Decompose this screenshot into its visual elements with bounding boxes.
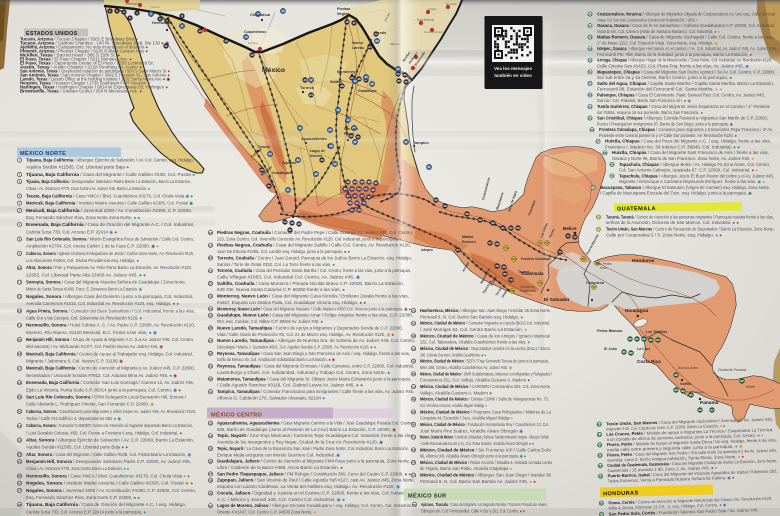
svg-text:31: 31 bbox=[267, 184, 271, 188]
svg-text:Las Tablillas: Las Tablillas bbox=[646, 330, 667, 334]
svg-text:64: 64 bbox=[456, 248, 460, 252]
svg-text:Michoacana) / Av. Michoacán #1: Michoacana) / Av. Michoacán #1377, Col. … bbox=[26, 344, 163, 349]
svg-text:34: 34 bbox=[309, 93, 313, 97]
svg-text:54: 54 bbox=[412, 473, 416, 477]
svg-text:Honduras: Honduras bbox=[632, 258, 655, 264]
svg-text:Hermosillo, Sonora / Casa YMCA: Hermosillo, Sonora / Casa YMCA / Blvd. C… bbox=[26, 473, 190, 478]
svg-text:75: 75 bbox=[558, 250, 562, 254]
svg-text:38: 38 bbox=[209, 479, 213, 483]
svg-text:53: 53 bbox=[443, 204, 447, 208]
svg-text:45: 45 bbox=[353, 194, 357, 198]
svg-text:80: 80 bbox=[597, 422, 601, 426]
svg-text:14: 14 bbox=[18, 323, 22, 327]
svg-text:Brownsville, Texas / Graham Ce: Brownsville, Texas / Graham Center / 354… bbox=[20, 89, 142, 94]
svg-text:21: 21 bbox=[404, 140, 408, 144]
svg-text:Permasil 9, N. Col. Barrio San: Permasil 9, N. Col. Barrio San Bartolo e… bbox=[420, 314, 523, 319]
svg-text:GUATEMALA: GUATEMALA bbox=[617, 206, 656, 212]
svg-text:Tapachula, Chiapas / Albergue: Tapachula, Chiapas / Albergue Jesús El B… bbox=[619, 173, 774, 178]
svg-text:Porres / Preangacion Inmigrant: Porres / Preangacion Inmigrantes 97, Bar… bbox=[597, 121, 733, 126]
svg-text:53: 53 bbox=[412, 461, 416, 465]
svg-text:Constantino 251, Col. Vallejo,: Constantino 251, Col. Vallejo, Alcaldía … bbox=[420, 378, 530, 383]
svg-text:18: 18 bbox=[209, 231, 213, 235]
svg-text:46: 46 bbox=[367, 180, 371, 184]
svg-text:46: 46 bbox=[360, 194, 364, 198]
svg-text:Monterrey, Nuevo León / Casa d: Monterrey, Nuevo León / Casa del Migrant… bbox=[217, 294, 409, 299]
svg-text:93: 93 bbox=[698, 408, 702, 412]
svg-text:Torreón, Coahuila / Casa del P: Torreón, Coahuila / Casa del Pensador Sa… bbox=[217, 268, 411, 273]
svg-text:22: 22 bbox=[209, 282, 213, 286]
svg-text:Paso Canoas: Paso Canoas bbox=[686, 390, 705, 394]
svg-text:/ Calle Agustín Ramírez #3118,: / Calle Agustín Ramírez #3118, Col. Gabr… bbox=[217, 383, 363, 388]
svg-text:Tepic, Nayarit / Cruz Roja Mex: Tepic, Nayarit / Cruz Roja Mexicana / Ca… bbox=[217, 433, 414, 438]
svg-text:17: 17 bbox=[352, 21, 356, 25]
svg-text:/ Luis Donaldo Colosio, #50, C: / Luis Donaldo Colosio, #50, Col. Frente… bbox=[26, 430, 182, 435]
svg-text:Luxemburgo y Ghani, Col. Solid: Luxemburgo y Ghani, Col. Solidaridad, Vo… bbox=[217, 370, 390, 375]
svg-text:31: 31 bbox=[286, 188, 290, 192]
svg-text:México, Ciudad de México / Cár: México, Ciudad de México / Cáritas CDMX … bbox=[420, 397, 549, 402]
svg-text:17: 17 bbox=[18, 367, 22, 371]
svg-text:27: 27 bbox=[404, 80, 408, 84]
svg-text:26: 26 bbox=[209, 326, 213, 330]
svg-text:Coatzacoalcos, Veracruz / Albe: Coatzacoalcos, Veracruz / Albergue de Mi… bbox=[597, 12, 775, 17]
svg-text:señora de la Asunción, Diócesi: señora de la Asunción, Diócesis de San M… bbox=[606, 220, 740, 225]
svg-text:81: 81 bbox=[598, 433, 602, 437]
svg-text:Agua Prieta, Sonora / Comedor: Agua Prieta, Sonora / Comedor del Buen S… bbox=[26, 308, 195, 313]
svg-text:Matamoros, Tamaulipas / Casa d: Matamoros, Tamaulipas / Casa del Migrant… bbox=[217, 376, 411, 381]
svg-text:Ferrocarril 88, Estación del F: Ferrocarril 88, Estación del Ferrocarril… bbox=[597, 87, 723, 92]
svg-text:Anaya, Col. San José, Coatzaco: Anaya, Col. San José, Coatzacoalcos Cons… bbox=[597, 17, 698, 22]
svg-text:26: 26 bbox=[397, 79, 401, 83]
svg-text:San Luis Río Colorado, Sonora: San Luis Río Colorado, Sonora / CRM Dele… bbox=[26, 394, 187, 399]
svg-text:44: 44 bbox=[346, 194, 350, 198]
svg-text:Corpus Christi: Corpus Christi bbox=[424, 30, 443, 34]
svg-text:Carlota Sosa 733, Col. Acceso: Carlota Sosa 733, Col. Acceso E.P. 22414… bbox=[26, 229, 117, 234]
svg-text:Salto del Agua, Chiapas / Capi: Salto del Agua, Chiapas / Capilla Santa … bbox=[597, 81, 774, 86]
svg-text:28: 28 bbox=[209, 352, 213, 356]
svg-text:31: 31 bbox=[209, 390, 213, 394]
svg-text:Golfo de México 40, Col. Ampli: Golfo de México 40, Col. Ampliación Soli… bbox=[217, 357, 335, 362]
svg-text:63: 63 bbox=[516, 226, 520, 230]
svg-text:27: 27 bbox=[353, 140, 357, 144]
svg-text:123, Zona Centro, Col. Inverni: 123, Zona Centro, Col. Invernillo Conoci… bbox=[217, 236, 402, 241]
svg-text:82: 82 bbox=[642, 337, 646, 341]
svg-text:43: 43 bbox=[412, 334, 416, 338]
svg-text:42: 42 bbox=[412, 322, 416, 326]
svg-text:México, Ciudad de México / Cas: México, Ciudad de México / Casa de los A… bbox=[420, 333, 550, 338]
svg-text:Mapastepec, Chiapas / Casa del: Mapastepec, Chiapas / Casa del Migrante … bbox=[597, 69, 775, 74]
svg-text:72: 72 bbox=[573, 235, 577, 239]
svg-text:24: 24 bbox=[268, 152, 272, 156]
svg-text:HONDURAS: HONDURAS bbox=[603, 490, 639, 497]
svg-text:Sonoyta, Sonora / Casa del Mig: Sonoyta, Sonora / Casa del Migrante Nues… bbox=[26, 280, 186, 285]
svg-text:/ Capilla de Macuspana Escuela: / Capilla de Macuspana Escuela del Tren.… bbox=[600, 191, 752, 196]
svg-text:Tapachula, Chiapas / Albergue: Tapachula, Chiapas / Albergue Belén / Av… bbox=[619, 162, 770, 167]
svg-text:Ejido La Victoria, Punta Seda: Ejido La Victoria, Punta Seda C.P. 80314… bbox=[26, 387, 181, 392]
svg-text:39: 39 bbox=[209, 491, 213, 495]
svg-text:Tacaná, Tacaná / Centro de Ate: Tacaná, Tacaná / Centro de Atención a la… bbox=[606, 215, 774, 220]
svg-text:Necesitados / Unacode Sondas #: Necesitados / Unacode Sondas #7912, Col.… bbox=[26, 373, 177, 378]
svg-text:México, Ciudad de México / SMR: México, Ciudad de México / SMR Scalabrin… bbox=[420, 371, 553, 376]
svg-text:Tepic, Nayarit / La Casa de la: Tepic, Nayarit / La Casa de la Esperanza… bbox=[217, 446, 409, 451]
svg-text:61: 61 bbox=[501, 226, 505, 230]
svg-text:Mexicali, Baja California / Ce: Mexicali, Baja California / Centro de At… bbox=[26, 366, 195, 371]
svg-text:45: 45 bbox=[412, 359, 416, 363]
svg-text:46: 46 bbox=[297, 222, 301, 226]
svg-text:34: 34 bbox=[209, 434, 213, 438]
svg-text:19: 19 bbox=[18, 395, 22, 399]
svg-text:90: 90 bbox=[681, 389, 685, 393]
svg-text:Guadalajara, Jalisco / Centro: Guadalajara, Jalisco / Centro de Atenció… bbox=[217, 459, 410, 464]
svg-text:41: 41 bbox=[412, 309, 416, 313]
svg-text:78: 78 bbox=[510, 289, 514, 293]
svg-text:49: 49 bbox=[350, 187, 354, 191]
svg-text:51: 51 bbox=[364, 187, 368, 191]
svg-text:Aguascalientes: Aguascalientes bbox=[301, 137, 327, 141]
svg-text:88: 88 bbox=[674, 373, 678, 377]
svg-text:Panamá: Panamá bbox=[700, 400, 719, 406]
svg-text:Aquiles Serdán #11565, Col. Li: Aquiles Serdán #11565, Col. Libertad par… bbox=[26, 165, 129, 170]
svg-text:30: 30 bbox=[209, 377, 213, 381]
svg-text:50: 50 bbox=[357, 187, 361, 191]
svg-text:86: 86 bbox=[629, 351, 633, 355]
svg-text:San Antonio: San Antonio bbox=[417, 18, 434, 22]
svg-text:36: 36 bbox=[357, 77, 361, 81]
svg-text:47: 47 bbox=[374, 181, 378, 185]
svg-text:Altar, Sonora / Pan y Panquema: Altar, Sonora / Pan y Panquemas Av. Feli… bbox=[26, 265, 192, 270]
svg-text:Ampliación #2704, Col. Anexa C: Ampliación #2704, Col. Anexa Cañón 1 de … bbox=[26, 244, 159, 249]
svg-text:Mexicali, Baja California / Ju: Mexicali, Baja California / Juventud 200… bbox=[26, 208, 192, 213]
svg-text:Hermosillo: Hermosillo bbox=[152, 21, 172, 25]
svg-text:Calle Sur y las Cerejos, Col.: Calle Sur y las Cerejos, Col. Soberonia … bbox=[26, 316, 142, 321]
svg-text:23: 23 bbox=[375, 39, 379, 43]
svg-text:92: 92 bbox=[740, 379, 744, 383]
svg-text:Enrique Mejía enzguina con Mor: Enrique Mejía enzguina con Morelo Guerre… bbox=[217, 452, 340, 457]
svg-text:82: 82 bbox=[598, 443, 602, 447]
svg-text:Esq. Fernando Sánchez Ríos, Zo: Esq. Fernando Sánchez Ríos, Zona Norte C… bbox=[26, 495, 140, 500]
svg-text:Guadalajara: Guadalajara bbox=[272, 171, 292, 175]
svg-text:Zapopan, Jalisco / San Vicente: Zapopan, Jalisco / San Vicente de Paul /… bbox=[217, 478, 415, 483]
svg-text:Mexicali, Baja California / Ce: Mexicali, Baja California / Centro de Ap… bbox=[26, 351, 193, 356]
svg-text:esquina con Lázaro Cárdenas, L: esquina con Lázaro Cárdenas, La Venta de… bbox=[217, 484, 400, 489]
svg-text:México, Ciudad de México / Dep: México, Ciudad de México / Deportados Un… bbox=[420, 346, 551, 351]
svg-text:MÉXICO NORTE: MÉXICO NORTE bbox=[20, 149, 66, 157]
svg-text:49: 49 bbox=[355, 201, 359, 205]
svg-text:609, Barrio de Guadalupe (Junt: 609, Barrio de Guadalupe (Junto al Pante… bbox=[217, 427, 396, 432]
svg-text:Aquiles Serdán #11565, Col. Li: Aquiles Serdán #11565, Col. Libertad par… bbox=[26, 445, 128, 450]
svg-text:50: 50 bbox=[362, 201, 366, 205]
svg-text:84: 84 bbox=[599, 464, 603, 468]
svg-text:24: 24 bbox=[209, 307, 213, 311]
svg-text:Nogales, Sonora / Albergue Cas: Nogales, Sonora / Albergue Casa del Desi… bbox=[26, 294, 193, 299]
svg-text:Nuevo Laredo, Tamaulipas / Alb: Nuevo Laredo, Tamaulipas / Albergue de N… bbox=[217, 338, 415, 343]
svg-text:Tijuana, Baja California / Cas: Tijuana, Baja California / Casa de Oraci… bbox=[26, 502, 186, 507]
svg-text:75: 75 bbox=[597, 228, 601, 232]
svg-text:29: 29 bbox=[209, 364, 213, 368]
svg-text:89: 89 bbox=[674, 388, 678, 392]
svg-text:21: 21 bbox=[18, 424, 22, 428]
svg-text:66: 66 bbox=[590, 128, 594, 132]
svg-text:37: 37 bbox=[209, 472, 213, 476]
svg-text:20: 20 bbox=[370, 82, 374, 86]
svg-text:Peñas Blancas: Peñas Blancas bbox=[597, 329, 622, 333]
svg-text:Matías: Matías bbox=[462, 235, 473, 239]
svg-text:66: 66 bbox=[502, 265, 506, 269]
svg-text:Mier 198, Centro, Alcaldía Cua: Mier 198, Centro, Alcaldía Cuauhtémoc Av… bbox=[420, 365, 512, 370]
svg-text:Lagos de: Lagos de bbox=[310, 149, 325, 153]
svg-text:Poniente entre Central ponien: Poniente entre Central ponien te y 1ª Ca… bbox=[599, 133, 737, 138]
svg-text:14: 14 bbox=[244, 35, 248, 39]
svg-text:25: 25 bbox=[403, 73, 407, 77]
svg-text:sur #1564, esquina 16 sur poni: sur #1564, esquina 16 sur poniente, Barr… bbox=[597, 110, 703, 115]
svg-text:Benjamín Hill, Sonora / Grupo: Benjamín Hill, Sonora / Grupo de Ayuda a… bbox=[26, 337, 194, 342]
svg-text:24: 24 bbox=[396, 67, 400, 71]
svg-text:71: 71 bbox=[538, 241, 542, 245]
svg-text:22: 22 bbox=[18, 438, 22, 442]
svg-text:Los Alacranes #4004, Col. Divi: Los Alacranes #4004, Col. Divina Provide… bbox=[26, 258, 139, 263]
svg-text:Tecate, Baja California / Casa: Tecate, Baja California / Casa YMCA / Bl… bbox=[26, 193, 193, 198]
svg-text:71: 71 bbox=[591, 186, 595, 190]
svg-text:44: 44 bbox=[353, 180, 357, 184]
svg-text:74: 74 bbox=[597, 215, 601, 219]
svg-text:25: 25 bbox=[209, 314, 213, 318]
svg-text:Huehuetoca, México / Albergue: Huehuetoca, México / Albergue San Juan D… bbox=[420, 308, 551, 313]
svg-text:Tacaná: Tacaná bbox=[518, 270, 529, 274]
svg-text:58: 58 bbox=[588, 35, 592, 39]
svg-text:Huixtla, Chiapas / Casa del Pa: Huixtla, Chiapas / Casa del Paso del Mig… bbox=[605, 139, 771, 144]
svg-text:19: 19 bbox=[346, 118, 350, 122]
svg-text:Descalape / María J. Gerardos: Descalape / María J. Gerardos #801, Col.… bbox=[217, 345, 376, 350]
svg-text:84: 84 bbox=[656, 338, 660, 342]
svg-text:65: 65 bbox=[588, 116, 592, 120]
svg-text:69: 69 bbox=[610, 163, 614, 167]
svg-text:96, Alfonso XIII, Alcaldía Álv: 96, Alfonso XIII, Alcaldía Álvaro Obregó… bbox=[420, 454, 526, 459]
svg-text:Victoria s/n, Col. Carrera (At: Victoria s/n, Col. Carrera (Atrás de San… bbox=[597, 29, 720, 34]
svg-text:San Cristóbal, Chiapas / Alber: San Cristóbal, Chiapas / Albergue Comida… bbox=[597, 116, 768, 121]
svg-text:18: 18 bbox=[18, 381, 22, 385]
svg-text:Vea los mensajes: Vea los mensajes bbox=[494, 66, 532, 71]
svg-text:Nogales, Sonora / Juventud 200: Nogales, Sonora / Juventud 2000 / Av. Co… bbox=[26, 488, 196, 493]
svg-text:Tijuana, Baja California / Alb: Tijuana, Baja California / Albergue Ejér… bbox=[26, 158, 194, 163]
svg-text:62: 62 bbox=[509, 226, 513, 230]
svg-text:48: 48 bbox=[343, 187, 347, 191]
svg-text:1° de Mayo 1113, Col. Estación: 1° de Mayo 1113, Col. Estación Vieja. Zo… bbox=[597, 40, 718, 45]
svg-text:51: 51 bbox=[412, 435, 416, 439]
svg-text:Golfito: Golfito bbox=[680, 382, 691, 386]
svg-text:México, Ciudad de México / Alb: México, Ciudad de México / Albergue San … bbox=[420, 473, 552, 478]
svg-text:67: 67 bbox=[488, 241, 492, 245]
svg-text:Santos / Torre de Orata #332,: Santos / Torre de Orata #332, Col. La To… bbox=[217, 262, 335, 267]
svg-text:Choluteca: Choluteca bbox=[586, 281, 605, 285]
svg-text:72: 72 bbox=[581, 257, 585, 261]
svg-text:Negras: Negras bbox=[337, 12, 350, 16]
svg-text:44: 44 bbox=[283, 220, 287, 224]
svg-text:Arriaga, Chiapas / Albergue Ho: Arriaga, Chiapas / Albergue Hogar de la … bbox=[597, 58, 772, 63]
svg-text:MÉXICO SUR: MÉXICO SUR bbox=[408, 492, 446, 500]
svg-text:México, Ciudad de México / Com: México, Ciudad de México / Comedor migra… bbox=[420, 321, 550, 326]
svg-text:México, Ciudad de México / Fun: México, Ciudad de México / Fundación Hum… bbox=[420, 422, 549, 427]
svg-text:54: 54 bbox=[512, 257, 516, 261]
svg-text:Nuevo Laredo, Tamaulipas / Cen: Nuevo Laredo, Tamaulipas / Centro de Apo… bbox=[217, 325, 403, 330]
svg-text:Chava / Av. Ozamocs #779, Zona: Chava / Av. Ozamocs #779, Zona Centro Ba… bbox=[26, 466, 129, 471]
svg-text:Laredo: Laredo bbox=[352, 46, 365, 50]
svg-text:Guadalupe: Guadalupe bbox=[358, 89, 377, 93]
svg-text:Mexicali: Mexicali bbox=[126, 2, 138, 6]
svg-text:El Jobo: El Jobo bbox=[604, 347, 618, 351]
svg-text:Calle por Cooperativa 5 / 9. Z: Calle por Cooperativa 5 / 9. Zona Norte,… bbox=[606, 232, 723, 237]
svg-text:21: 21 bbox=[427, 165, 431, 169]
svg-text:80: 80 bbox=[628, 337, 632, 341]
svg-text:47: 47 bbox=[367, 195, 371, 199]
svg-text:32: 32 bbox=[314, 172, 318, 176]
svg-text:55: 55 bbox=[413, 503, 417, 507]
svg-text:59: 59 bbox=[478, 218, 482, 222]
svg-text:#54, esq. Carolas, Col. Milita: #54, esq. Carolas, Col. Militar C.P. 882… bbox=[217, 319, 323, 324]
svg-text:50: 50 bbox=[412, 423, 416, 427]
svg-text:Esq. Fernando Sánchez Ríos, Zo: Esq. Fernando Sánchez Ríos, Zona Norte Z… bbox=[26, 215, 140, 220]
svg-text:28: 28 bbox=[329, 144, 333, 148]
svg-text:10: 10 bbox=[281, 9, 285, 13]
svg-text:49: 49 bbox=[412, 410, 416, 414]
svg-text:MÉXICO CENTRO: MÉXICO CENTRO bbox=[211, 411, 262, 419]
svg-text:27: 27 bbox=[209, 339, 213, 343]
svg-text:43: 43 bbox=[320, 158, 324, 162]
svg-text:Ciudad de Panamá: Ciudad de Panamá bbox=[718, 368, 746, 372]
svg-text:Macuspana, Tabasco / Albergue: Macuspana, Tabasco / Albergue El Santuar… bbox=[600, 185, 770, 190]
svg-text:77: 77 bbox=[592, 285, 596, 289]
svg-text:Hermosillo, Sonora / Hotel Cob: Hermosillo, Sonora / Hotel Cobina A. C. … bbox=[26, 323, 195, 328]
svg-text:68: 68 bbox=[603, 151, 607, 155]
svg-text:Saltillo: Saltillo bbox=[330, 80, 343, 84]
svg-text:México: México bbox=[262, 67, 285, 74]
svg-text:Austin: Austin bbox=[428, 7, 437, 11]
svg-text:74: 74 bbox=[504, 246, 508, 250]
svg-text:Ensenada, Baja California / Co: Ensenada, Baja California / Comedor San … bbox=[26, 380, 194, 385]
svg-text:Tecún Umán, San Marcos / Centr: Tecún Umán, San Marcos / Centro de Recep… bbox=[606, 227, 774, 232]
svg-text:10: 10 bbox=[198, 29, 202, 33]
svg-text:81: 81 bbox=[635, 337, 639, 341]
svg-text:José María Pino Suárez, Alcald: José María Pino Suárez, Alcaldía Álvaro … bbox=[420, 428, 523, 433]
svg-text:Torreón, Coahuila / Centro / J: Torreón, Coahuila / Centro / Juan Gerard… bbox=[217, 255, 412, 260]
svg-text:71: 71 bbox=[566, 234, 570, 238]
svg-text:Nogales, Sonora / Instituto Ma: Nogales, Sonora / Instituto Madre Assunt… bbox=[26, 481, 193, 486]
svg-text:58: 58 bbox=[465, 212, 469, 216]
svg-text:México, Ciudad de México / Com: México, Ciudad de México / Comité de Sol… bbox=[420, 435, 549, 440]
svg-text:Metetí: Metetí bbox=[746, 385, 755, 389]
svg-text:Guatemala: Guatemala bbox=[520, 289, 536, 293]
svg-text:43: 43 bbox=[346, 180, 350, 184]
svg-text:56: 56 bbox=[588, 12, 592, 16]
svg-text:11: 11 bbox=[18, 280, 21, 284]
svg-text:45: 45 bbox=[360, 180, 364, 184]
svg-text:Huixtla, Chiapás / Casa del Mi: Huixtla, Chiapás / Casa del Migrante San… bbox=[612, 150, 769, 155]
svg-text:12: 12 bbox=[18, 295, 22, 299]
svg-text:Tuxtla Gutiérrez, Chiapas / Ca: Tuxtla Gutiérrez, Chiapas / Casa del Mig… bbox=[597, 104, 771, 109]
svg-text:Monterrey: Monterrey bbox=[337, 70, 356, 74]
svg-text:47: 47 bbox=[412, 385, 416, 389]
svg-text:Frontera Comalapa: Frontera Comalapa bbox=[521, 257, 550, 261]
svg-text:21: 21 bbox=[209, 269, 213, 273]
svg-text:46: 46 bbox=[412, 372, 416, 376]
svg-text:12: 12 bbox=[224, 39, 228, 43]
svg-text:35: 35 bbox=[209, 447, 213, 451]
svg-text:Tijuana, Baja California / Cas: Tijuana, Baja California / Casa del Migr… bbox=[26, 172, 195, 177]
svg-text:132, Col. Tabacalera, Alcaldía: 132, Col. Tabacalera, Alcaldía Cuauhtémo… bbox=[420, 340, 530, 345]
svg-text:Reynosa, Tamaulipas / Casa del: Reynosa, Tamaulipas / Casa del Migrante … bbox=[217, 364, 414, 369]
svg-text:67: 67 bbox=[596, 140, 600, 144]
svg-text:Altar, Sonora / Casa del Migra: Altar, Sonora / Casa del Migrante / Call… bbox=[26, 452, 191, 457]
svg-text:Col. Verónica Anzures, Alcaldí: Col. Verónica Anzures, Alcaldía Miguel H… bbox=[420, 403, 487, 408]
svg-text:70: 70 bbox=[509, 278, 513, 282]
svg-text:Permasil 9, N. Col. Barrio San: Permasil 9, N. Col. Barrio San Bartolo A… bbox=[420, 479, 536, 484]
svg-text:Guadalupe, Nuevo León / Casa d: Guadalupe, Nuevo León / Casa del Migrant… bbox=[217, 313, 413, 318]
svg-text:Mexicali, Baja California / In: Mexicali, Baja California / Instituto Ma… bbox=[26, 201, 193, 206]
svg-text:Oaxaca, Oaxaca / Casa de fe en: Oaxaca, Oaxaca / Casa de fe en Samaritan… bbox=[597, 23, 775, 28]
svg-text:México, Ciudad de México / Rut: México, Ciudad de México / Rutas Arcoiri… bbox=[420, 460, 553, 465]
svg-text:69: 69 bbox=[503, 272, 507, 276]
svg-text:Avenida de los Insurgentes y R: Avenida de los Insurgentes y Rey Nayar, … bbox=[217, 440, 383, 445]
svg-text:44: 44 bbox=[412, 347, 416, 351]
svg-text:Calle Abelardo L. Rodríguez Or: Calle Abelardo L. Rodríguez Oriente, San… bbox=[26, 402, 154, 407]
svg-text:73: 73 bbox=[538, 281, 542, 285]
svg-text:12302, Col. Libertad Parte Alt: 12302, Col. Libertad Parte Alta 22400 Av… bbox=[26, 272, 146, 277]
svg-text:Cocula, Jalisco / Dignidad y J: Cocula, Jalisco / Dignidad y Justicia en… bbox=[217, 491, 411, 496]
svg-text:Avenida Carreteros #1515, Col.: Avenida Carreteros #1515, Col. Industria… bbox=[26, 301, 179, 306]
svg-text:Caborca, Sonora / Iglesia Cris: Caborca, Sonora / Iglesia Cristiana Emba… bbox=[26, 251, 194, 256]
svg-text:Tampico, Tamaulipas / Comedor: Tampico, Tamaulipas / Comedor Franciscan… bbox=[217, 389, 414, 394]
svg-text:Col. San Antonio Cabreján, Apa: Col. San Antonio Cabreján, Apastada 67. … bbox=[619, 168, 759, 173]
svg-text:Misión de Santa Teresa #1400,: Misión de Santa Teresa #1400, Fracc. E. … bbox=[26, 287, 142, 292]
svg-text:17: 17 bbox=[309, 78, 313, 82]
svg-text:64: 64 bbox=[588, 105, 592, 109]
svg-text:72: 72 bbox=[545, 241, 549, 245]
svg-text:Aguascalientes, Aguascalientes: Aguascalientes, Aguascalientes / Casa Mi… bbox=[217, 421, 414, 426]
svg-text:649 Ote. Nueva Santa Catarina: 649 Ote. Nueva Santa Catarina C.P. 66350… bbox=[217, 287, 345, 292]
svg-text:85: 85 bbox=[622, 350, 626, 354]
svg-text:38: 38 bbox=[340, 84, 344, 88]
svg-text:#4467, Esquina con Santos Pait: #4467, Esquina con Santos Paita, Col. Gu… bbox=[217, 300, 366, 305]
svg-text:15: 15 bbox=[364, 75, 368, 79]
svg-text:Belice: Belice bbox=[563, 226, 577, 231]
svg-text:Ensenada, Baja California / Ca: Ensenada, Baja California / Casa de Orac… bbox=[26, 222, 194, 227]
svg-text:México, Ciudad de México / SEP: México, Ciudad de México / SEPI / Fray S… bbox=[420, 359, 549, 364]
svg-text:29: 29 bbox=[296, 158, 300, 162]
svg-text:24: 24 bbox=[396, 72, 400, 76]
svg-text:70: 70 bbox=[610, 174, 614, 178]
svg-text:83: 83 bbox=[649, 338, 653, 342]
svg-text:13: 13 bbox=[18, 309, 22, 313]
svg-text:México, Ciudad de México / CAF: México, Ciudad de México / CAFEMIN / Con… bbox=[420, 384, 551, 389]
svg-text:Potosí: Potosí bbox=[344, 132, 355, 136]
svg-text:16: 16 bbox=[18, 352, 22, 356]
svg-text:Nicaragua: Nicaragua bbox=[625, 308, 649, 314]
svg-text:Caborca, Sonora / Comedor CAMD: Caborca, Sonora / Comedor CAMDEP, Centro… bbox=[26, 423, 193, 428]
svg-text:Sur sub entre 2a y 4a Oriente,: Sur sub entre 2a y 4a Oriente, Barrio Ce… bbox=[597, 75, 733, 80]
svg-text:Palenque, Chiapas / Casa El Ca: Palenque, Chiapas / Casa El Caminante J'… bbox=[597, 92, 765, 97]
svg-text:Chihuahua: Chihuahua bbox=[250, 12, 271, 17]
svg-text:41: 41 bbox=[356, 135, 360, 139]
svg-text:Laredo: Laredo bbox=[374, 31, 387, 35]
svg-text:Saltillo, Coahuila / Casa Mona: Saltillo, Coahuila / Casa Monarca / Priv… bbox=[217, 281, 404, 286]
svg-text:40: 40 bbox=[209, 504, 213, 508]
svg-text:23: 23 bbox=[209, 294, 213, 298]
svg-text:Costa Rica: Costa Rica bbox=[637, 359, 661, 364]
svg-text:Matías Romero, Oaxaca / Casa d: Matías Romero, Oaxaca / Casa de Migrante… bbox=[597, 35, 774, 40]
svg-text:52: 52 bbox=[412, 448, 416, 452]
svg-text:San Pedro Tlaquepaque, Jalisco: San Pedro Tlaquepaque, Jalisco / FM Refu… bbox=[217, 471, 411, 476]
svg-text:Piedras Negras, Coahuila / Cas: Piedras Negras, Coahuila / Casa del Migr… bbox=[217, 243, 411, 248]
svg-text:Ixtepec: Ixtepec bbox=[421, 248, 433, 252]
svg-text:30: 30 bbox=[333, 162, 337, 166]
